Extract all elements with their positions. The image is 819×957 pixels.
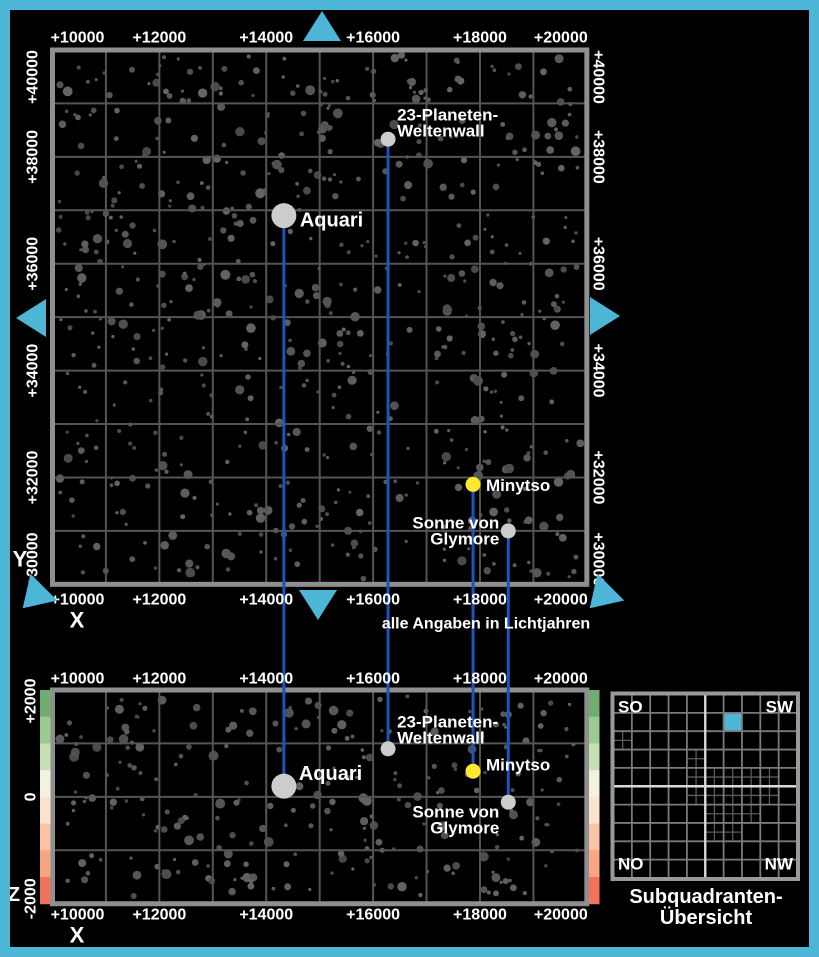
field-star (501, 425, 505, 429)
field-star (576, 166, 580, 170)
field-star (501, 372, 507, 378)
field-star (113, 404, 116, 407)
field-star (197, 258, 201, 262)
field-star (161, 869, 171, 879)
z-tick-left: 0 (23, 792, 40, 801)
field-star (507, 518, 512, 523)
field-star (122, 231, 129, 238)
field-star (59, 121, 67, 129)
field-star (547, 118, 556, 127)
field-star (423, 241, 426, 244)
units-note: alle Angaben in Lichtjahren (382, 616, 590, 633)
field-star (560, 342, 565, 347)
field-star (200, 373, 203, 376)
field-star (478, 416, 485, 423)
field-star (464, 240, 471, 247)
field-star (94, 446, 99, 451)
field-star (556, 514, 563, 521)
field-star (67, 720, 72, 725)
field-star (177, 57, 180, 60)
field-star (443, 275, 446, 278)
field-star (244, 781, 249, 786)
field-star (193, 704, 200, 711)
field-star (206, 185, 211, 190)
field-star (365, 858, 370, 863)
field-star (434, 429, 439, 434)
field-star (323, 77, 326, 80)
field-star (63, 242, 66, 245)
field-star (259, 550, 262, 553)
field-star (418, 90, 423, 95)
field-star (198, 357, 207, 366)
field-star (418, 893, 422, 897)
field-star (255, 188, 265, 198)
star-dot-z-minytso[interactable] (466, 764, 481, 779)
field-star (396, 494, 404, 502)
field-star (93, 310, 97, 314)
field-star (329, 799, 335, 805)
star-label-minytso[interactable]: Minytso (486, 476, 550, 495)
gradient-segment (40, 797, 51, 824)
field-star (196, 833, 204, 841)
field-star (351, 867, 354, 870)
field-star (225, 727, 231, 733)
field-star (77, 66, 81, 70)
z-gradient-bar-left (40, 690, 51, 904)
field-star (129, 67, 135, 73)
field-star (187, 98, 192, 103)
x-axis-letter-bottom-map: X (70, 923, 85, 948)
overview-highlight-cell[interactable] (724, 713, 742, 731)
field-star (351, 540, 359, 548)
field-star (145, 483, 150, 488)
field-star (473, 235, 479, 241)
field-star (163, 151, 166, 154)
field-star (79, 735, 83, 739)
field-star (478, 322, 486, 330)
field-star (254, 503, 258, 507)
field-star (518, 252, 521, 255)
field-star (293, 428, 301, 436)
field-star (436, 791, 439, 794)
field-star (120, 509, 126, 515)
field-star (246, 730, 253, 737)
field-star (192, 859, 199, 866)
field-star (503, 878, 509, 884)
field-star (133, 871, 142, 880)
field-star (119, 320, 128, 329)
field-star (461, 157, 467, 163)
star-dot-z-aquari[interactable] (271, 774, 296, 799)
field-star (272, 887, 276, 891)
field-star (168, 531, 177, 540)
field-star (81, 240, 88, 247)
field-star (233, 878, 236, 881)
field-star (336, 79, 339, 82)
field-star (543, 450, 548, 455)
overview-caption-line2: Übersicht (660, 906, 753, 929)
field-star (546, 823, 549, 826)
field-star (251, 94, 254, 97)
field-star (350, 443, 358, 451)
y-tick-left: +34000 (25, 344, 42, 398)
field-star (267, 803, 273, 809)
field-star (94, 250, 99, 255)
field-star (301, 111, 307, 117)
field-star (249, 841, 254, 846)
field-star (346, 96, 351, 101)
field-star (576, 440, 584, 448)
field-star (245, 374, 251, 380)
field-star (56, 81, 63, 88)
field-star (81, 876, 88, 883)
field-star (59, 318, 62, 321)
field-star (412, 95, 421, 104)
field-star (288, 229, 293, 234)
field-star (209, 878, 216, 885)
field-star (493, 184, 500, 191)
field-star (72, 752, 76, 756)
field-star (195, 565, 199, 569)
field-star (76, 442, 79, 445)
field-star (168, 205, 171, 208)
field-star (187, 192, 195, 200)
field-star (393, 771, 397, 775)
field-star (248, 883, 255, 890)
star-label-sonne-von-glymore[interactable]: Glymore (430, 529, 499, 548)
field-star (537, 749, 540, 752)
field-star (347, 250, 351, 254)
field-star (501, 320, 505, 324)
field-star (332, 393, 337, 398)
star-label-aquari[interactable]: Aquari (300, 210, 363, 232)
field-star (518, 395, 524, 401)
field-star (155, 137, 158, 140)
field-star (564, 216, 567, 219)
field-star (412, 240, 419, 247)
field-star (165, 353, 168, 356)
field-star (500, 122, 505, 127)
field-star (308, 823, 313, 828)
field-star (457, 466, 460, 469)
field-star (337, 720, 346, 729)
field-star (80, 479, 85, 484)
field-star (296, 84, 300, 88)
field-star (374, 255, 377, 258)
gradient-segment (589, 797, 600, 824)
field-star (152, 729, 155, 732)
field-star (99, 858, 103, 862)
y-tick-left: +36000 (25, 237, 42, 291)
field-star (346, 414, 352, 420)
field-star (91, 331, 95, 335)
x-tick-bottom-map-bottom: +20000 (534, 907, 588, 924)
field-star (407, 79, 413, 85)
field-star (125, 799, 128, 802)
field-star (89, 794, 97, 802)
field-star (131, 765, 137, 771)
field-star (294, 727, 297, 730)
field-star (346, 330, 351, 335)
field-star (71, 353, 75, 357)
field-star (482, 553, 486, 557)
field-star (66, 431, 69, 434)
field-star (361, 748, 365, 752)
x-tick-top-map-bottom: +20000 (534, 592, 588, 609)
field-star (443, 304, 452, 313)
field-star (295, 289, 304, 298)
field-star (224, 744, 228, 748)
field-star (83, 772, 90, 779)
field-star (267, 172, 270, 175)
field-star (405, 494, 408, 497)
field-star (193, 311, 202, 320)
star-dot-23-planeten-weltenwall[interactable] (381, 132, 396, 147)
field-star (347, 365, 351, 369)
field-star (119, 164, 124, 169)
field-star (376, 411, 379, 414)
field-star (129, 857, 132, 860)
star-dot-z-23-planeten-weltenwall[interactable] (381, 741, 396, 756)
field-star (81, 534, 85, 538)
field-star (513, 563, 517, 567)
field-star (491, 871, 494, 874)
field-star (331, 80, 335, 84)
field-star (515, 63, 522, 70)
field-star (471, 190, 476, 195)
field-star (118, 761, 121, 764)
field-star (185, 560, 193, 568)
x-tick-bottom-map-bottom: +18000 (453, 907, 507, 924)
field-star (86, 215, 91, 220)
x-tick-bottom-map-top: +18000 (453, 671, 507, 688)
field-star (332, 406, 335, 409)
field-star (58, 491, 62, 495)
field-star (228, 888, 235, 895)
gradient-segment (589, 850, 600, 877)
field-star (184, 835, 194, 845)
field-star (539, 522, 548, 531)
field-star (493, 351, 498, 356)
field-star (465, 448, 468, 451)
field-star (564, 226, 567, 229)
field-star (289, 523, 295, 529)
field-star (258, 357, 261, 360)
field-star (550, 320, 560, 330)
field-star (337, 488, 340, 491)
field-star (434, 351, 441, 358)
field-star (508, 353, 514, 359)
field-star (463, 279, 466, 282)
field-star (483, 430, 486, 433)
field-star (324, 808, 331, 815)
field-star (525, 516, 533, 524)
field-star (451, 872, 455, 876)
field-star (443, 559, 447, 563)
field-star (459, 270, 466, 277)
field-star (275, 419, 284, 428)
y-tick-right: +32000 (590, 451, 607, 505)
field-star (129, 556, 135, 562)
field-star (186, 744, 192, 750)
field-star (447, 429, 450, 432)
field-star (435, 357, 439, 361)
field-star (132, 446, 136, 450)
field-star (510, 348, 514, 352)
field-star (333, 108, 343, 118)
field-star (129, 222, 135, 228)
field-star (132, 347, 136, 351)
field-star (228, 512, 231, 515)
field-star (575, 135, 578, 138)
star-label-23-planeten-weltenwall[interactable]: Weltenwall (397, 728, 485, 747)
field-star (416, 481, 419, 484)
field-star (147, 82, 150, 85)
field-star (554, 127, 558, 131)
field-star (118, 191, 121, 194)
star-label-aquari[interactable]: Aquari (299, 763, 362, 785)
field-star (225, 161, 228, 164)
field-star (185, 284, 193, 292)
field-star (213, 298, 222, 307)
field-star (305, 379, 308, 382)
field-star (326, 456, 329, 459)
field-star (558, 165, 565, 172)
field-star (308, 169, 313, 174)
field-star (133, 358, 140, 365)
field-star (500, 401, 503, 404)
star-dot-minytso[interactable] (466, 477, 481, 492)
field-star (131, 893, 137, 899)
y-tick-left: +38000 (25, 130, 42, 184)
field-star (173, 858, 176, 861)
field-star (535, 816, 539, 820)
field-star (299, 132, 304, 137)
field-star (336, 330, 343, 337)
x-tick-bottom-map-bottom: +14000 (239, 907, 293, 924)
field-star (119, 215, 123, 219)
field-star (417, 290, 420, 293)
field-star (63, 87, 73, 97)
field-star (55, 735, 64, 744)
field-star (339, 243, 343, 247)
x-tick-top: +10000 (51, 30, 105, 47)
field-star (115, 229, 118, 232)
field-star (73, 113, 76, 116)
field-star (473, 376, 483, 386)
field-star (153, 229, 157, 233)
gradient-segment (40, 770, 51, 797)
star-dot-z-sonne-von-glymore[interactable] (501, 795, 516, 810)
field-star (358, 553, 363, 558)
field-star (298, 360, 306, 368)
field-star (176, 870, 181, 875)
field-star (505, 243, 509, 247)
field-star (154, 567, 157, 570)
field-star (161, 826, 168, 833)
field-star (519, 91, 526, 98)
field-star (183, 272, 187, 276)
gradient-segment (589, 824, 600, 851)
gradient-segment (589, 770, 600, 797)
field-star (338, 352, 341, 355)
gradient-segment (589, 743, 600, 770)
field-star (363, 839, 366, 842)
field-star (523, 891, 527, 895)
field-star (405, 255, 409, 259)
star-dot-sonne-von-glymore[interactable] (501, 523, 516, 538)
field-star (388, 883, 394, 889)
field-star (241, 341, 248, 348)
field-star (65, 879, 70, 884)
x-tick-top: +16000 (346, 30, 400, 47)
field-star (272, 721, 278, 727)
field-star (512, 337, 518, 343)
x-tick-top-map-bottom: +18000 (453, 592, 507, 609)
field-star (374, 286, 382, 294)
field-star (81, 570, 85, 574)
star-dot-aquari[interactable] (271, 203, 296, 228)
field-star (177, 568, 181, 572)
field-star (128, 442, 132, 446)
field-star (435, 380, 439, 384)
field-star (161, 327, 164, 330)
x-tick-bottom-map-bottom: +10000 (51, 907, 105, 924)
field-star (192, 496, 196, 500)
z-tick-left: +2000 (23, 678, 40, 723)
star-label-sonne-von-glymore[interactable]: Glymore (430, 819, 499, 838)
field-star (176, 181, 179, 184)
field-star (287, 433, 291, 437)
field-star (512, 150, 517, 155)
field-star (325, 512, 329, 516)
field-star (165, 809, 170, 814)
field-star (110, 806, 114, 810)
field-star (374, 139, 382, 147)
star-label-minytso[interactable]: Minytso (486, 756, 550, 775)
field-star (564, 727, 568, 731)
field-star (192, 278, 195, 281)
field-star (376, 839, 383, 846)
field-star (380, 729, 383, 732)
field-star (348, 376, 357, 385)
z-tick-left: -2000 (23, 878, 40, 919)
field-star (342, 328, 346, 332)
field-star (528, 94, 532, 98)
field-star (331, 728, 337, 734)
field-star (160, 541, 169, 550)
field-star (356, 177, 361, 182)
x-tick-top: +14000 (239, 30, 293, 47)
field-star (305, 447, 310, 452)
field-star (297, 503, 302, 508)
star-label-23-planeten-weltenwall[interactable]: Weltenwall (397, 122, 485, 141)
field-star (329, 311, 333, 315)
field-star (152, 329, 155, 332)
x-tick-bottom-map-bottom: +12000 (132, 907, 186, 924)
field-star (284, 823, 288, 827)
field-star (84, 309, 87, 312)
field-star (301, 498, 306, 503)
field-star (180, 463, 183, 466)
field-star (493, 890, 499, 896)
field-star (519, 336, 523, 340)
field-star (154, 777, 158, 781)
y-axis-letter: Y (13, 547, 28, 572)
field-star (302, 719, 311, 728)
field-star (329, 828, 332, 831)
field-star (400, 196, 406, 202)
